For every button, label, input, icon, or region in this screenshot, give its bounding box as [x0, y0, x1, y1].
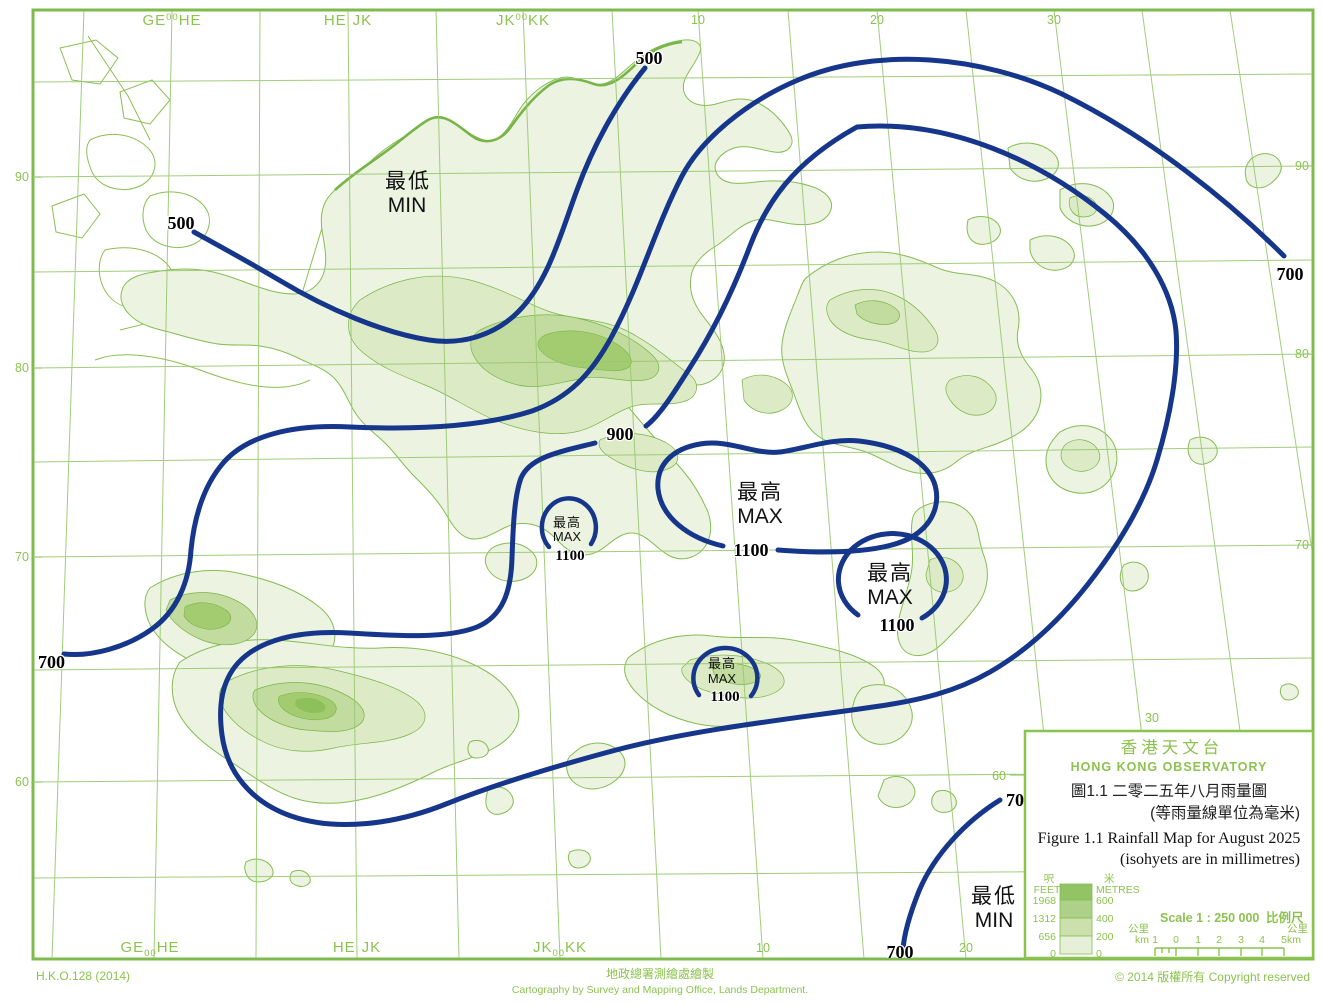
elevation-feet-2: 656 — [1038, 931, 1056, 943]
legend-box: 香港天文台 HONG KONG OBSERVATORY 圖1.1 二零二五年八月… — [1025, 731, 1313, 960]
isohyet-label-500-top: 500 — [636, 48, 663, 68]
isohyet-label-700-left: 700 — [38, 652, 65, 672]
rainfall-map: 500 500 700 700 700 700 900 1100 1100 11… — [0, 0, 1322, 1004]
footer-ref: H.K.O.128 (2014) — [36, 969, 130, 983]
scalebar-tick-label-3: 3 — [1238, 934, 1244, 946]
max-label-west-en: MAX — [553, 529, 582, 544]
elevation-feet-3: 0 — [1050, 948, 1056, 960]
scalebar-km-left-en: km — [1135, 934, 1149, 946]
rainfall-map-page: 500 500 700 700 700 700 900 1100 1100 11… — [0, 0, 1322, 1004]
max-label-center-zh: 最高 — [737, 481, 783, 504]
isohyet-label-700-right: 700 — [1277, 264, 1304, 284]
max-label-center-en: MAX — [737, 505, 783, 528]
tick-inner-60: 60 — [992, 769, 1006, 783]
max-label-east-zh: 最高 — [867, 562, 913, 585]
scalebar-tick-label-2: 2 — [1216, 934, 1222, 946]
scalebar-tick-label-1l: 1 — [1152, 934, 1158, 946]
elevation-metres-2: 200 — [1096, 931, 1114, 943]
isohyet-label-1100-left: 1100 — [555, 548, 584, 564]
tick-left-70: 70 — [15, 550, 29, 564]
isohyet-label-1100-right: 1100 — [879, 615, 914, 635]
scalebar-tick-label-0: 0 — [1173, 934, 1179, 946]
min-label-southeast-en: MIN — [975, 909, 1014, 932]
footer-cartography-en: Cartography by Survey and Mapping Office… — [512, 984, 808, 996]
elevation-feet-0: 1968 — [1033, 895, 1057, 907]
elevation-swatch-1 — [1060, 884, 1092, 900]
isohyet-label-1100-south: 1100 — [710, 689, 739, 705]
legend-caption-en: Figure 1.1 Rainfall Map for August 2025 — [1038, 830, 1301, 847]
tick-bottom-20: 20 — [959, 941, 973, 955]
elevation-swatch-2 — [1060, 900, 1092, 918]
tick-bottom-10: 10 — [756, 941, 770, 955]
elevation-metres-0: 600 — [1096, 895, 1114, 907]
tick-top-30: 30 — [1047, 13, 1061, 27]
isohyet-label-900: 900 — [607, 424, 634, 444]
scalebar-tick-label-1: 1 — [1195, 934, 1201, 946]
scalebar-km-right-en: km — [1287, 934, 1301, 946]
tick-left-60: 60 — [15, 775, 29, 789]
isohyet-label-500-left: 500 — [168, 213, 195, 233]
elevation-swatch-3 — [1060, 918, 1092, 936]
max-label-west-zh: 最高 — [553, 515, 581, 530]
elevation-feet-1: 1312 — [1033, 913, 1057, 925]
scalebar-tick-label-5: 5 — [1281, 934, 1287, 946]
footer-copyright: © 2014 版權所有 Copyright reserved — [1115, 970, 1310, 984]
elevation-metres-3: 0 — [1096, 948, 1102, 960]
elevation-metres-1: 400 — [1096, 913, 1114, 925]
max-label-east-en: MAX — [867, 586, 913, 609]
footer-cartography-zh: 地政總署測繪處繪製 — [606, 966, 714, 981]
scale-text: Scale 1 : 250 000 — [1160, 911, 1259, 925]
min-label-north-en: MIN — [388, 194, 427, 217]
legend-caption-en2: (isohyets are in millimetres) — [1120, 851, 1300, 868]
tick-inner-30: 30 — [1145, 711, 1159, 725]
min-label-north-zh: 最低 — [385, 170, 431, 193]
elevation-swatch-4 — [1060, 936, 1092, 954]
tick-left-80: 80 — [15, 361, 29, 375]
scalebar-tick-label-4: 4 — [1259, 934, 1265, 946]
legend-title-en: HONG KONG OBSERVATORY — [1071, 760, 1268, 774]
max-label-south-zh: 最高 — [708, 656, 736, 671]
legend-caption-zh2: (等雨量線單位為毫米) — [1150, 803, 1300, 822]
tick-top-10: 10 — [691, 13, 705, 27]
tick-left-90: 90 — [15, 170, 29, 184]
max-label-south-en: MAX — [708, 671, 737, 686]
footer: H.K.O.128 (2014) 地政總署測繪處繪製 Cartography b… — [36, 966, 1310, 996]
legend-caption-zh: 圖1.1 二零二五年八月雨量圖 — [1071, 782, 1267, 800]
legend-title-zh: 香港天文台 — [1121, 738, 1224, 757]
min-label-southeast-zh: 最低 — [971, 885, 1017, 908]
isohyet-label-1100-center: 1100 — [733, 540, 768, 560]
elevation-swatches — [1060, 884, 1092, 954]
tick-top-20: 20 — [870, 13, 884, 27]
